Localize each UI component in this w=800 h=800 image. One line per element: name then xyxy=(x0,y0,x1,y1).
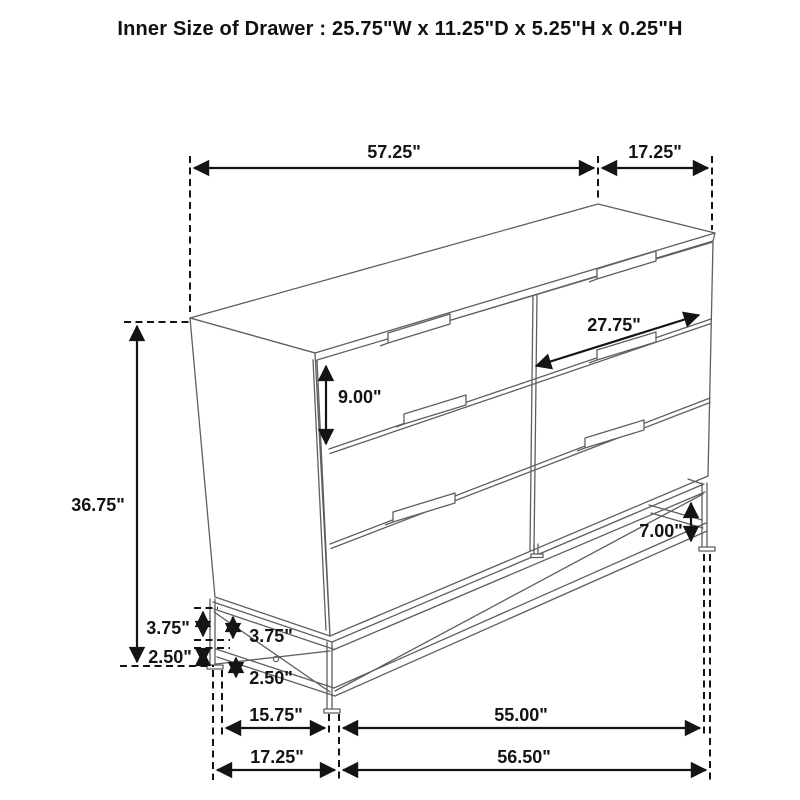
front-left-foot xyxy=(324,709,340,713)
cabinet-body xyxy=(190,204,715,636)
dim-drawer-width-label: 27.75" xyxy=(587,315,641,335)
dresser-dimension-diagram: 57.25" 17.25" 36.75" 9.00" 27.75" 7.00" xyxy=(0,0,800,800)
dim-base-clearance-label: 7.00" xyxy=(639,521,683,541)
dim-top-length-label: 57.25" xyxy=(367,142,421,162)
front-left-leg xyxy=(327,642,332,710)
front-right-foot xyxy=(699,547,715,551)
dim-left-rail-inner: 3.75" 2.50" xyxy=(233,617,293,688)
dim-overall-height: 36.75" xyxy=(71,322,214,666)
center-support-foot xyxy=(531,554,543,558)
dim-drawer-height-label: 9.00" xyxy=(338,387,382,407)
dim-left-rail-outer: 3.75" 2.50" xyxy=(146,608,230,667)
dim-base-depth-inner-label: 15.75" xyxy=(249,705,303,725)
dim-overall-height-label: 36.75" xyxy=(71,495,125,515)
back-left-foot xyxy=(207,665,223,669)
dim-base-depth-overall-label: 17.25" xyxy=(250,747,304,767)
dim-left-rail-inner-label: 3.75" xyxy=(249,626,293,646)
dim-top-depth-label: 17.25" xyxy=(628,142,682,162)
dim-base-length-inner-label: 55.00" xyxy=(494,705,548,725)
cabinet-left-side-panel xyxy=(190,318,330,636)
dim-base-length-overall-label: 56.50" xyxy=(497,747,551,767)
dim-left-foot-inner-label: 2.50" xyxy=(249,668,293,688)
dim-left-foot-outer-label: 2.50" xyxy=(148,647,192,667)
furniture-dimension-diagram-page: Inner Size of Drawer : 25.75"W x 11.25"D… xyxy=(0,0,800,800)
dim-left-rail-outer-label: 3.75" xyxy=(146,618,190,638)
